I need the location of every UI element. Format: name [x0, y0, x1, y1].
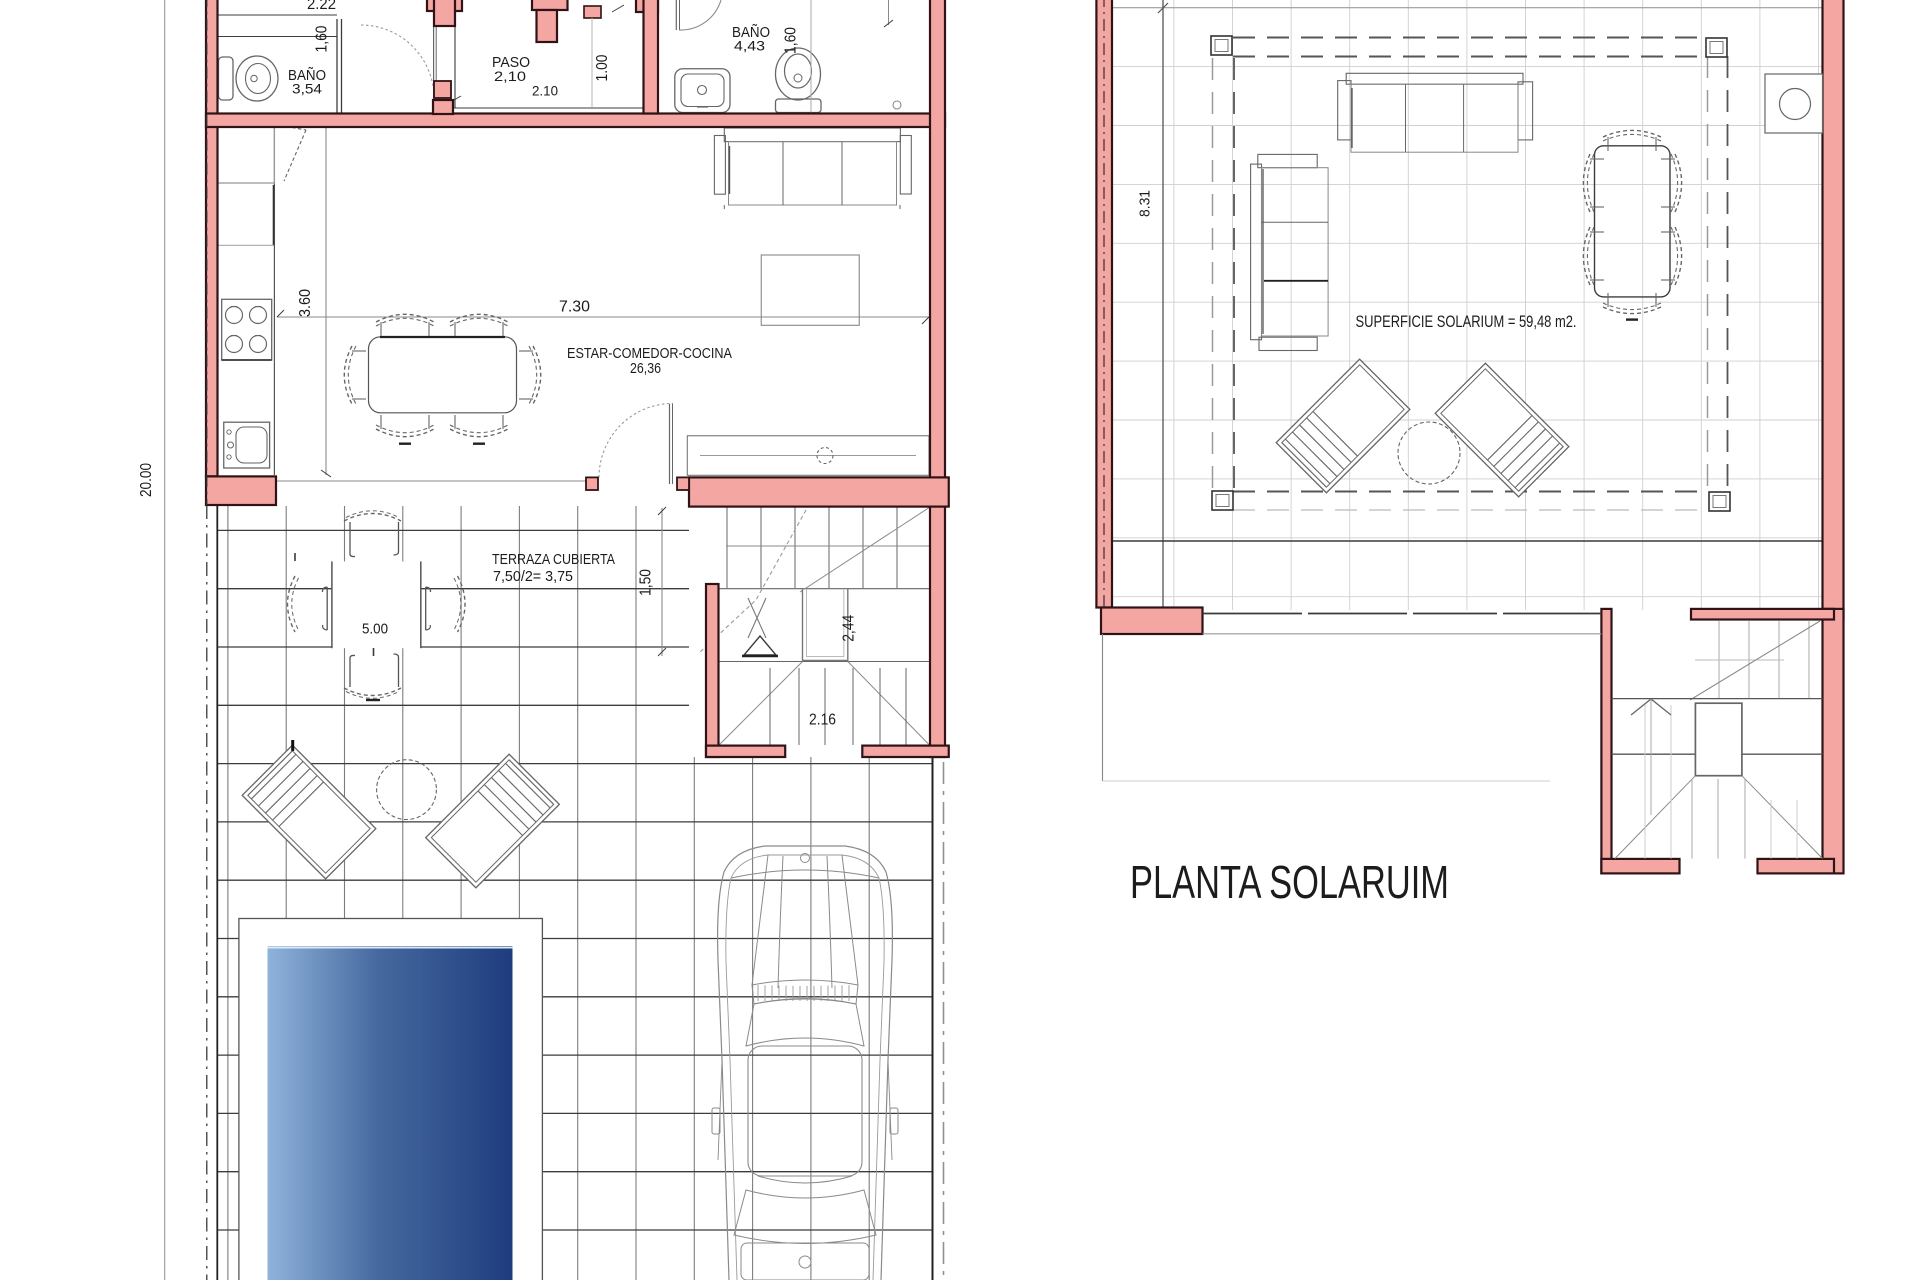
svg-text:5.00: 5.00 — [362, 621, 388, 638]
svg-text:1,60: 1,60 — [314, 25, 331, 52]
svg-text:SUPERFICIE SOLARIUM = 59,48 m2: SUPERFICIE SOLARIUM = 59,48 m2. — [1356, 313, 1577, 331]
svg-text:3.60: 3.60 — [297, 289, 314, 317]
svg-text:3,54: 3,54 — [292, 81, 322, 97]
svg-text:1,50: 1,50 — [638, 569, 655, 596]
svg-text:20.00: 20.00 — [138, 463, 155, 497]
svg-text:TERRAZA CUBIERTA: TERRAZA CUBIERTA — [492, 551, 615, 568]
svg-text:2.10: 2.10 — [532, 83, 558, 99]
svg-text:8.31: 8.31 — [1137, 190, 1154, 217]
svg-text:2.22: 2.22 — [307, 0, 336, 13]
svg-text:2,10: 2,10 — [494, 68, 526, 84]
svg-text:7,50/2= 3,75: 7,50/2= 3,75 — [493, 569, 573, 585]
svg-text:PLANTA SOLARUIM: PLANTA SOLARUIM — [1130, 856, 1449, 908]
svg-text:4,43: 4,43 — [734, 38, 765, 54]
svg-text:7.30: 7.30 — [559, 299, 590, 316]
svg-text:1,60: 1,60 — [783, 27, 800, 54]
svg-text:26,36: 26,36 — [630, 360, 661, 377]
svg-text:1.00: 1.00 — [594, 54, 611, 81]
svg-text:2,44: 2,44 — [841, 614, 858, 641]
svg-text:2.16: 2.16 — [809, 712, 836, 729]
